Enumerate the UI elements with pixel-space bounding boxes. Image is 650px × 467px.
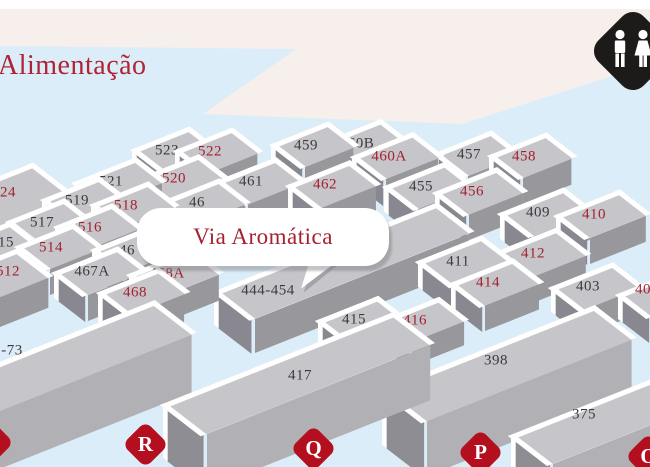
aisle-marker-R[interactable]: R xyxy=(122,421,169,467)
venue-map: 460B459523522457460A45852052146146245545… xyxy=(0,0,650,467)
aisle-marker-letter: O xyxy=(632,440,650,467)
aisle-marker-letter xyxy=(0,426,7,459)
via-aromatica-callout: Via Aromática xyxy=(137,208,389,266)
aisle-marker-Q[interactable]: Q xyxy=(290,425,337,467)
aisle-marker-letter: R xyxy=(129,428,162,461)
aisle-marker-letter: Q xyxy=(297,432,330,465)
callout-text: Via Aromática xyxy=(193,224,333,250)
aisle-marker-letter: P xyxy=(464,436,497,467)
area-label-alimentacao: Alimentação xyxy=(0,50,147,82)
restroom-icon xyxy=(610,29,650,73)
